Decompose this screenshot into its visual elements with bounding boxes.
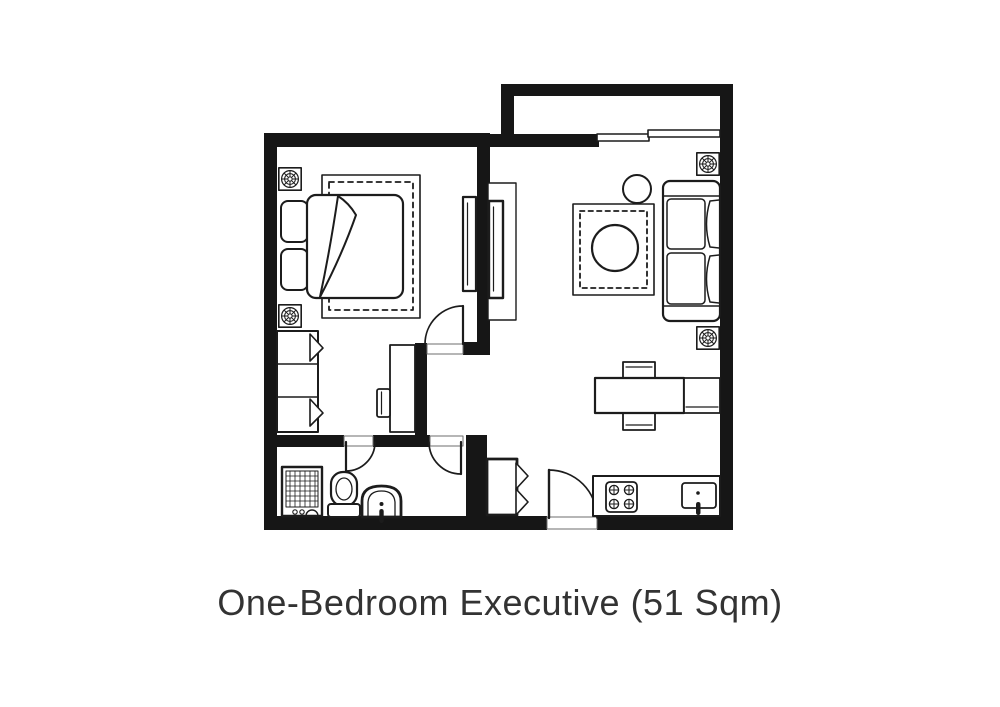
wall-living-top (487, 134, 599, 147)
bedroom-tv (463, 197, 476, 291)
desk (377, 345, 415, 432)
hall-bathroom-door (429, 442, 461, 474)
ceiling-fixture-icon (697, 327, 719, 349)
wall-left (264, 133, 277, 530)
faucet-dot (380, 502, 384, 506)
shower (282, 467, 322, 516)
closet-door-mark (516, 489, 528, 515)
bedroom-door (425, 306, 463, 344)
wall-bottom-left (264, 516, 547, 530)
ceiling-fixture-icon (279, 168, 301, 190)
closet-door-mark (516, 463, 528, 489)
wall-balcony-left (501, 84, 514, 142)
sofa-outline (663, 181, 720, 321)
balcony-sliding-window (597, 130, 720, 141)
dining-chair (623, 413, 655, 430)
wall-top-bedroom (264, 133, 490, 147)
entry-closet (487, 459, 528, 515)
wall-divider-foot (463, 342, 490, 355)
wall-balcony-top (501, 84, 733, 96)
bed-mattress (307, 195, 403, 298)
closet-body (487, 459, 517, 515)
door-swing-arc (549, 470, 597, 518)
floorplan-caption: One-Bedroom Executive (51 Sqm) (0, 583, 1000, 623)
wall-right (720, 84, 733, 530)
toilet-bowl (331, 472, 357, 506)
wall-bottom-right (597, 516, 733, 530)
wardrobe (277, 331, 323, 432)
drain-stem (379, 509, 383, 523)
threshold-bathroom-door (344, 436, 373, 446)
desk-top (390, 345, 415, 432)
kitchen-counter (593, 476, 720, 516)
wall-bath-top-right (373, 435, 430, 447)
dining-table (595, 378, 684, 413)
sofa (663, 181, 720, 321)
ceiling-fixture-icon (279, 305, 301, 327)
double-bed (281, 195, 403, 298)
wall-desk-nook (415, 343, 427, 447)
bed-pillow (281, 249, 308, 290)
stove (606, 482, 637, 512)
living-tv-console (488, 183, 516, 320)
dining-set (595, 362, 720, 430)
door-swing-arc (429, 442, 461, 474)
threshold-bedroom-door (427, 344, 463, 354)
dining-bench (684, 378, 720, 413)
wall-entry-separator (466, 435, 487, 520)
bed-pillow (281, 201, 308, 242)
toilet-tank (328, 504, 360, 517)
threshold-hall-door (430, 436, 463, 446)
threshold-entry-door (547, 517, 597, 529)
dining-chair (623, 362, 655, 378)
window-panel (648, 130, 720, 137)
ceiling-fixture-icon (697, 153, 719, 175)
toilet (328, 472, 360, 517)
sink-faucet-dot (696, 491, 700, 495)
wall-bath-top-left (277, 435, 344, 447)
shower-outline (282, 467, 322, 516)
floorplan-page: One-Bedroom Executive (51 Sqm) (0, 0, 1000, 707)
tv-body (463, 197, 476, 291)
door-swing-arc (425, 306, 463, 344)
window-panel (597, 134, 649, 141)
tv-body (489, 201, 503, 298)
bathroom-sink (362, 486, 401, 523)
coffee-table (592, 225, 638, 271)
desk-chair (377, 389, 390, 417)
side-table (623, 175, 651, 203)
entry-door (549, 470, 597, 518)
sink-faucet-handle (696, 502, 701, 515)
